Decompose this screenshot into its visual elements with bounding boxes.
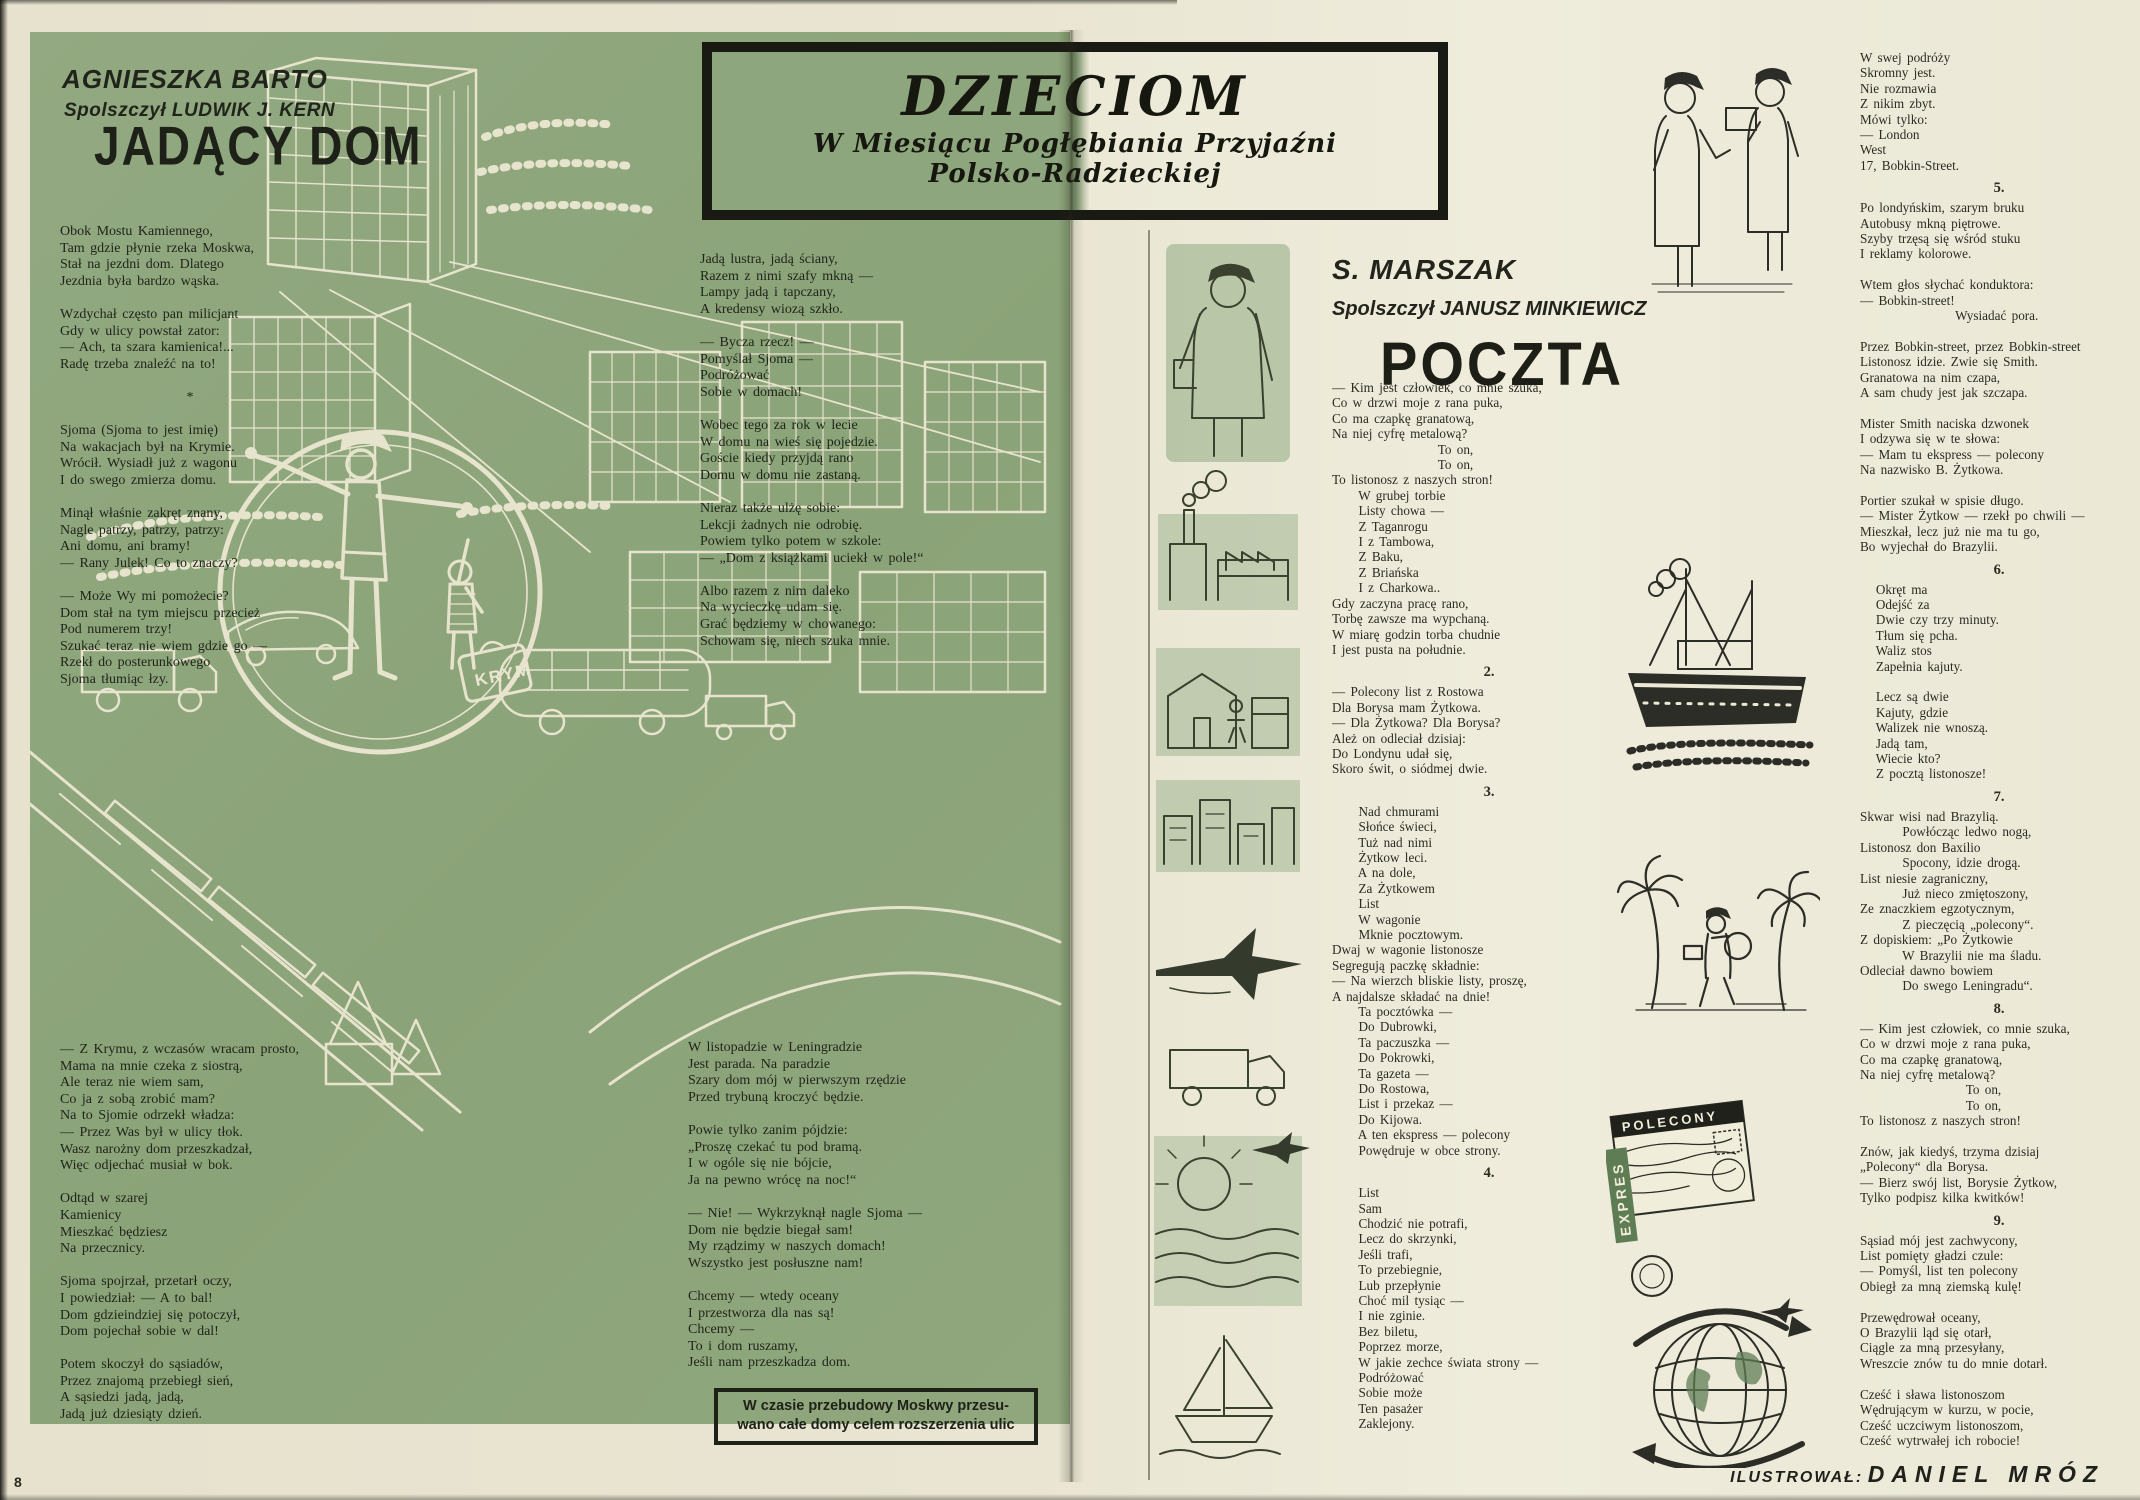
small-truck (706, 696, 794, 739)
registered-letter-illustration: POLECONY EXPRES (1606, 1078, 1770, 1268)
section-text: Nad chmurami Słońce świeci, Tuż nad nimi… (1332, 804, 1646, 1158)
section-text: Sąsiad mój jest zachwycony, List pomięty… (1860, 1233, 2138, 1449)
caption-box: W czasie przebudowy Moskwy przesu- wano … (714, 1388, 1038, 1445)
section-number: 6. (1860, 562, 2138, 579)
globe-illustration (1618, 1248, 1818, 1468)
section-text: — Polecony list z Rostowa Dla Borysa mam… (1332, 684, 1646, 776)
section-number: 3. (1332, 784, 1646, 801)
poem-section: 6. Okręt ma Odejść za Dwie czy trzy minu… (1860, 562, 2138, 782)
suitcase-label: KRYM (473, 660, 533, 691)
poem-section: 7.Skwar wisi nad Brazylią. Powłócząc led… (1860, 789, 2138, 994)
section-number: 2. (1332, 664, 1646, 681)
skyline-doodle (1156, 780, 1300, 872)
truck-doodle (1170, 1050, 1284, 1105)
scan-edge-left (0, 0, 8, 1500)
section-number: 4. (1332, 1165, 1646, 1182)
poem-jadacy-dom-col2-bottom: W listopadzie w Leningradzie Jest parada… (688, 1040, 922, 1372)
poem-section: W swej podróży Skromny jest. Nie rozmawi… (1860, 50, 2138, 173)
poem-jadacy-dom-col2-top: Jadą lustra, jadą ściany, Razem z nimi s… (700, 252, 923, 650)
poem-text: Jadą lustra, jadą ściany, Razem z nimi s… (700, 252, 923, 566)
left-author: AGNIESZKA BARTO (62, 64, 328, 95)
brazil-postman-illustration (1616, 818, 1820, 1016)
section-text: Skwar wisi nad Brazylią. Powłócząc ledwo… (1860, 809, 2138, 994)
poczta-strip-illustrations (1140, 228, 1316, 1468)
section-text: — Kim jest człowiek, co mnie szuka, Co w… (1860, 1021, 2138, 1206)
station-doodle (1156, 648, 1300, 756)
poem-jadacy-dom-col1-bottom: — Z Krymu, z wczasów wracam prosto, Mama… (60, 1042, 299, 1424)
scan-edge-top (0, 0, 1177, 5)
two-postmen-illustration (1622, 34, 1818, 302)
poem-section: 5.Po londyńskim, szarym bruku Autobusy m… (1860, 180, 2138, 554)
factory-doodle (1158, 471, 1298, 610)
poem-section: 8.— Kim jest człowiek, co mnie szuka, Co… (1860, 1001, 2138, 1206)
sun-sea-doodle (1154, 1132, 1310, 1306)
section-text: W swej podróży Skromny jest. Nie rozmawi… (1860, 50, 2138, 173)
poczta-column-2: W swej podróży Skromny jest. Nie rozmawi… (1860, 50, 2138, 1448)
page-number: 8 (14, 1474, 22, 1490)
sailboat-doodle (1160, 1336, 1280, 1458)
postman-doodle (1166, 244, 1290, 462)
section-number: 8. (1860, 1001, 2138, 1018)
section-number: 9. (1860, 1213, 2138, 1230)
poem-section: — Kim jest człowiek, co mnie szuka, Co w… (1332, 380, 1646, 657)
section-text: Okręt ma Odejść za Dwie czy trzy minuty.… (1860, 582, 2138, 782)
section-number: 5. (1860, 180, 2138, 197)
boy-figure (448, 540, 482, 668)
section-text: Po londyńskim, szarym bruku Autobusy mkn… (1860, 200, 2138, 554)
poem-text: Albo razem z nim daleko Na wycieczkę uda… (700, 584, 890, 649)
illustrator-credit: ILUSTROWAŁ: DANIEL MRÓZ (1730, 1461, 2104, 1488)
left-title: JADĄCY DOM (94, 114, 422, 178)
section-text: List Sam Chodzić nie potrafi, Lecz do sk… (1332, 1185, 1646, 1432)
scan-edge-bottom (0, 1494, 2140, 1500)
ship-illustration (1620, 545, 1816, 775)
poem-section: 2.— Polecony list z Rostowa Dla Borysa m… (1332, 664, 1646, 776)
left-page-background: KRYM AGNIESZKA BARTO Spolszczył LUDWIK J… (30, 32, 1070, 1424)
right-translator: Spolszczył JANUSZ MINKIEWICZ (1332, 298, 1646, 321)
magazine-spread: KRYM AGNIESZKA BARTO Spolszczył LUDWIK J… (0, 0, 2140, 1500)
jet-plane-doodle (1156, 928, 1302, 1000)
poem-section: 3. Nad chmurami Słońce świeci, Tuż nad n… (1332, 784, 1646, 1158)
section-number: 7. (1860, 789, 2138, 806)
page-fold (1058, 30, 1084, 1482)
poczta-column-1: — Kim jest człowiek, co mnie szuka, Co w… (1332, 380, 1646, 1432)
illustrator-name: DANIEL MRÓZ (1868, 1461, 2104, 1487)
poem-section: 9.Sąsiad mój jest zachwycony, List pomię… (1860, 1213, 2138, 1449)
poem-section: 4. List Sam Chodzić nie potrafi, Lecz do… (1332, 1165, 1646, 1432)
section-text: — Kim jest człowiek, co mnie szuka, Co w… (1332, 380, 1646, 657)
right-author: S. MARSZAK (1332, 254, 1516, 286)
poem-jadacy-dom-col1-top: Obok Mostu Kamiennego, Tam gdzie płynie … (60, 224, 267, 689)
illustrator-label: ILUSTROWAŁ: (1730, 1469, 1863, 1486)
